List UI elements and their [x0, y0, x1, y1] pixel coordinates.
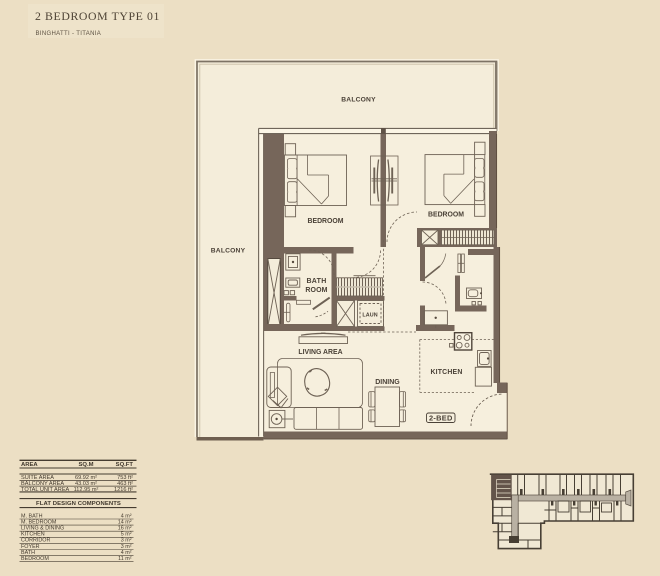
svg-text:3 m²: 3 m²: [121, 538, 132, 544]
svg-text:BALCONY: BALCONY: [341, 97, 376, 104]
svg-text:LAUN: LAUN: [362, 313, 377, 319]
svg-text:112.95 m²: 112.95 m²: [74, 487, 99, 493]
svg-text:11 m²: 11 m²: [118, 556, 132, 562]
svg-text:SQ.FT: SQ.FT: [116, 462, 134, 468]
svg-text:LIVING AREA: LIVING AREA: [298, 349, 342, 356]
svg-text:TOTAL UNIT AREA: TOTAL UNIT AREA: [21, 487, 70, 493]
svg-text:3 m²: 3 m²: [121, 544, 132, 550]
svg-text:2-BED: 2-BED: [429, 414, 453, 423]
svg-text:BEDROOM: BEDROOM: [21, 556, 49, 562]
svg-text:4 m²: 4 m²: [121, 513, 132, 519]
svg-text:SQ.M: SQ.M: [78, 462, 93, 468]
svg-text:BATH: BATH: [21, 550, 35, 556]
svg-text:BALCONY: BALCONY: [211, 248, 246, 255]
svg-text:LIVING & DINING: LIVING & DINING: [21, 526, 64, 532]
svg-text:14 m²: 14 m²: [118, 519, 132, 525]
svg-text:CORRIDOR: CORRIDOR: [21, 538, 50, 544]
svg-text:ROOM: ROOM: [305, 287, 327, 294]
svg-text:1216 ft²: 1216 ft²: [114, 487, 133, 493]
svg-text:M. BEDROOM: M. BEDROOM: [21, 519, 57, 525]
svg-text:DINING: DINING: [375, 379, 400, 386]
svg-text:2 BEDROOM TYPE 01: 2 BEDROOM TYPE 01: [35, 9, 160, 23]
svg-text:BINGHATTI - TITANIA: BINGHATTI - TITANIA: [36, 31, 102, 37]
svg-text:BATH: BATH: [306, 278, 326, 285]
svg-text:BEDROOM: BEDROOM: [428, 212, 464, 219]
svg-text:4 m²: 4 m²: [121, 550, 132, 556]
svg-text:KITCHEN: KITCHEN: [21, 532, 45, 538]
svg-text:AREA: AREA: [21, 462, 38, 468]
svg-text:FOYER: FOYER: [21, 544, 40, 550]
svg-text:M. BATH: M. BATH: [21, 513, 43, 519]
svg-text:BEDROOM: BEDROOM: [308, 218, 344, 225]
svg-text:5 m²: 5 m²: [121, 532, 132, 538]
svg-text:KITCHEN: KITCHEN: [430, 369, 462, 376]
svg-text:FLAT DESIGN COMPONENTS: FLAT DESIGN COMPONENTS: [36, 501, 121, 507]
svg-text:16 m²: 16 m²: [118, 526, 132, 532]
